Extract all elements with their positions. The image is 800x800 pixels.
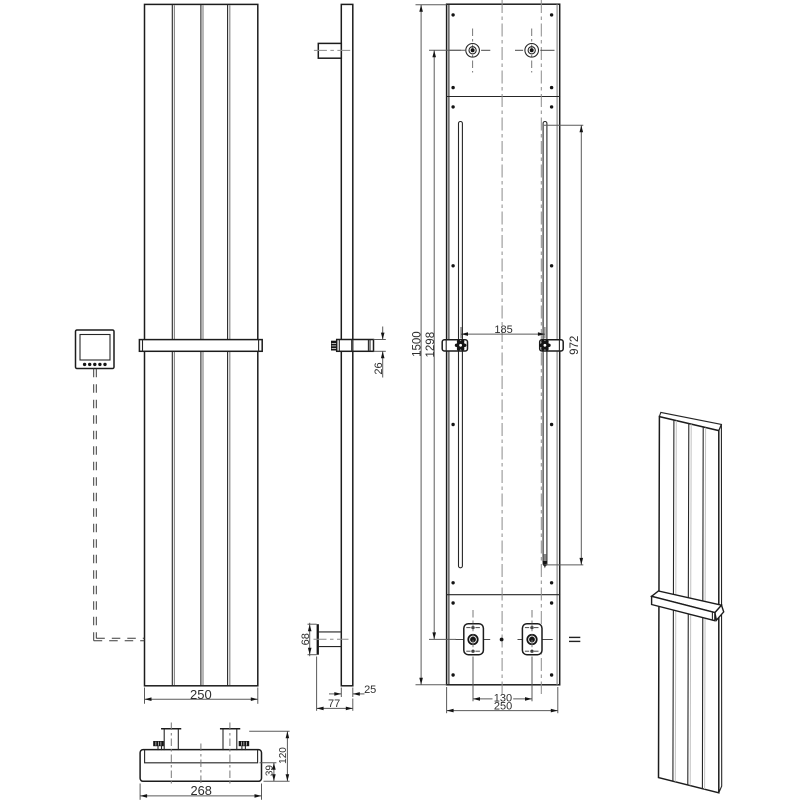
svg-text:1298: 1298 [425,332,437,358]
svg-text:1500: 1500 [411,331,423,357]
svg-text:68: 68 [300,633,312,645]
svg-text:26: 26 [373,362,385,374]
svg-text:972: 972 [569,336,581,355]
svg-text:185: 185 [494,324,512,336]
svg-text:39: 39 [265,765,276,777]
svg-text:25: 25 [364,684,376,696]
svg-text:268: 268 [191,783,212,798]
svg-text:250: 250 [190,687,212,702]
svg-text:77: 77 [328,698,340,710]
svg-text:120: 120 [278,747,289,764]
svg-text:250: 250 [494,700,512,712]
